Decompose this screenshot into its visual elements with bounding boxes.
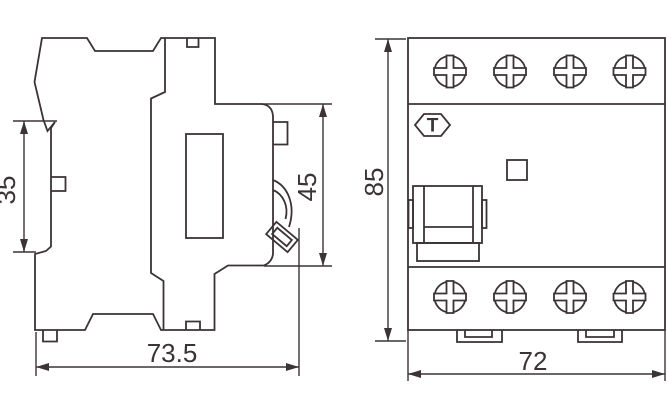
- mounting-tab: [457, 330, 502, 342]
- test-button: T: [415, 114, 450, 137]
- toggle-switch: [409, 186, 487, 261]
- side-view: 35 45 73.5: [0, 38, 332, 376]
- dim-85-label: 85: [359, 168, 389, 197]
- toggle-handle: [417, 243, 479, 261]
- screw-icon: [434, 281, 466, 313]
- screw-icon: [554, 56, 586, 88]
- screw-icon: [614, 281, 646, 313]
- test-button-label: T: [427, 116, 439, 137]
- dim-72-label: 72: [519, 346, 548, 376]
- technical-drawing-page: 35 45 73.5: [0, 0, 668, 412]
- front-face-tab: [273, 122, 288, 145]
- top-notch: [187, 38, 199, 47]
- screw-icon: [434, 56, 466, 88]
- dim-35-label: 35: [0, 176, 21, 205]
- dimension-width: 72: [408, 330, 665, 381]
- label-window: [186, 134, 223, 238]
- dimension-rail-clip-height: 35: [0, 121, 57, 252]
- indicator-window: [507, 160, 527, 180]
- dim-45-label: 45: [292, 173, 322, 202]
- side-view-outline: [35, 38, 274, 330]
- screw-icon: [494, 56, 526, 88]
- screw-icon: [614, 56, 646, 88]
- dim-73-5-label: 73.5: [147, 338, 198, 368]
- bottom-notch: [186, 322, 200, 331]
- dimension-height: 85: [359, 39, 406, 341]
- mounting-tab: [578, 330, 622, 342]
- din-clip-tooth: [51, 177, 66, 191]
- circuit-breaker-dimensional-drawing: 35 45 73.5: [0, 0, 668, 412]
- bottom-foot: [43, 330, 57, 342]
- front-view: T: [359, 38, 665, 381]
- screw-icon: [554, 281, 586, 313]
- screw-icon: [494, 281, 526, 313]
- dimension-depth: 73.5: [36, 228, 299, 376]
- housing-seam: [151, 38, 165, 330]
